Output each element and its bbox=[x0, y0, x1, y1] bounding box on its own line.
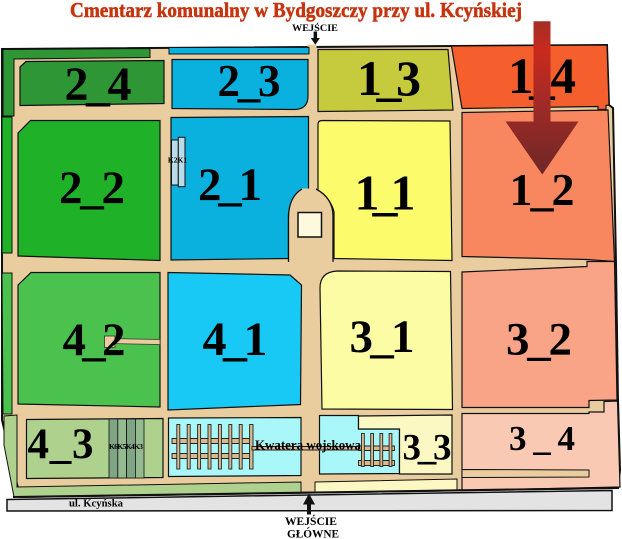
svg-text:3_2: 3_2 bbox=[506, 314, 572, 366]
svg-text:2_1: 2_1 bbox=[198, 159, 262, 211]
svg-text:4_3: 4_3 bbox=[28, 421, 94, 468]
svg-text:3_1: 3_1 bbox=[350, 311, 415, 363]
svg-text:K2K1: K2K1 bbox=[168, 156, 187, 165]
svg-text:ul. Kcyńska: ul. Kcyńska bbox=[69, 498, 123, 510]
svg-text:3_4: 3_4 bbox=[509, 419, 575, 458]
svg-text:Cmentarz komunalny w Bydgoszcz: Cmentarz komunalny w Bydgoszczy przy ul.… bbox=[70, 0, 522, 22]
svg-text:4_2: 4_2 bbox=[63, 314, 126, 366]
svg-text:1_3: 1_3 bbox=[357, 50, 421, 106]
svg-text:2_2: 2_2 bbox=[59, 162, 125, 214]
svg-text:2_3: 2_3 bbox=[218, 56, 281, 106]
svg-text:4_1: 4_1 bbox=[203, 313, 268, 366]
svg-text:3_3: 3_3 bbox=[403, 428, 452, 469]
svg-text:2_4: 2_4 bbox=[65, 58, 132, 111]
svg-text:1_1: 1_1 bbox=[355, 165, 416, 221]
svg-text:Kwatera wojskowa: Kwatera wojskowa bbox=[255, 438, 361, 453]
svg-text:K6K5K4K3: K6K5K4K3 bbox=[109, 442, 143, 451]
svg-text:GŁÓWNE: GŁÓWNE bbox=[287, 527, 339, 539]
